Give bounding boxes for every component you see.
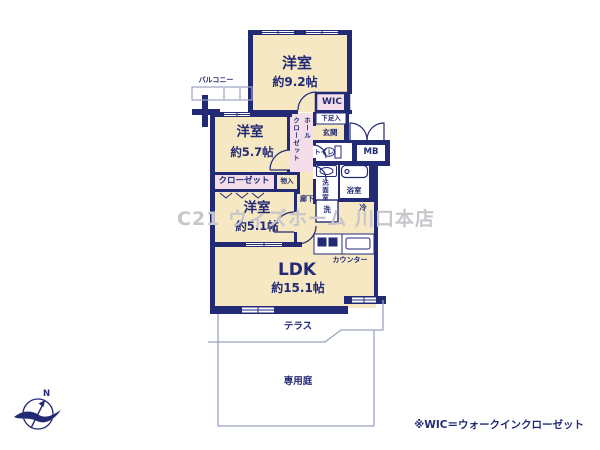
room2-size: 約5.7帖 — [230, 147, 273, 159]
compass-north-label: N — [43, 390, 50, 399]
meter-box-label: MB — [364, 148, 379, 157]
shoe-box-label: 下足入 — [321, 115, 341, 122]
hall-closet-label-col2: クローゼット — [292, 117, 299, 162]
washroom-label: 洗面室 — [321, 179, 328, 202]
hall-closet-label-col1: ホール — [303, 117, 310, 140]
balcony-outline — [192, 87, 252, 100]
balcony-label: バルコニー — [199, 77, 234, 84]
corridor-label: 廊下 — [300, 196, 314, 203]
counter-label: カウンター — [333, 257, 368, 264]
room1-size: 約9.2帖 — [272, 76, 317, 88]
ldk-size: 約15.1帖 — [271, 282, 325, 294]
ldk-name: LDK — [278, 262, 316, 279]
wic-label: WIC — [322, 98, 342, 107]
entrance-label: 玄関 — [323, 129, 338, 137]
terrace-garden-outline — [208, 300, 383, 426]
stove-icon-2 — [329, 238, 337, 246]
garden-label: 専用庭 — [284, 377, 313, 387]
terrace-label: テラス — [284, 322, 312, 332]
room2-name: 洋室 — [237, 126, 264, 140]
storage-label: 物入 — [281, 178, 294, 185]
toilet-label: トイレ — [314, 149, 334, 156]
compass-icon — [14, 399, 61, 429]
entrance-double-door — [350, 123, 384, 142]
stove-icon — [318, 238, 326, 246]
wic-footnote: ※WIC＝ウォークインクローゼット — [414, 420, 584, 431]
kitchen-counter — [314, 234, 374, 254]
watermark: C21 ウィズホーム 川口本店 — [177, 204, 435, 231]
floor-plan-image: バルコニー 洋室 約9.2帖 WIC 下足入 玄関 ホール クローゼット 洋室 … — [0, 0, 600, 450]
closet-label: クローゼット — [218, 177, 269, 186]
bathroom-label: 浴室 — [347, 187, 362, 195]
room1-name: 洋室 — [282, 56, 312, 71]
